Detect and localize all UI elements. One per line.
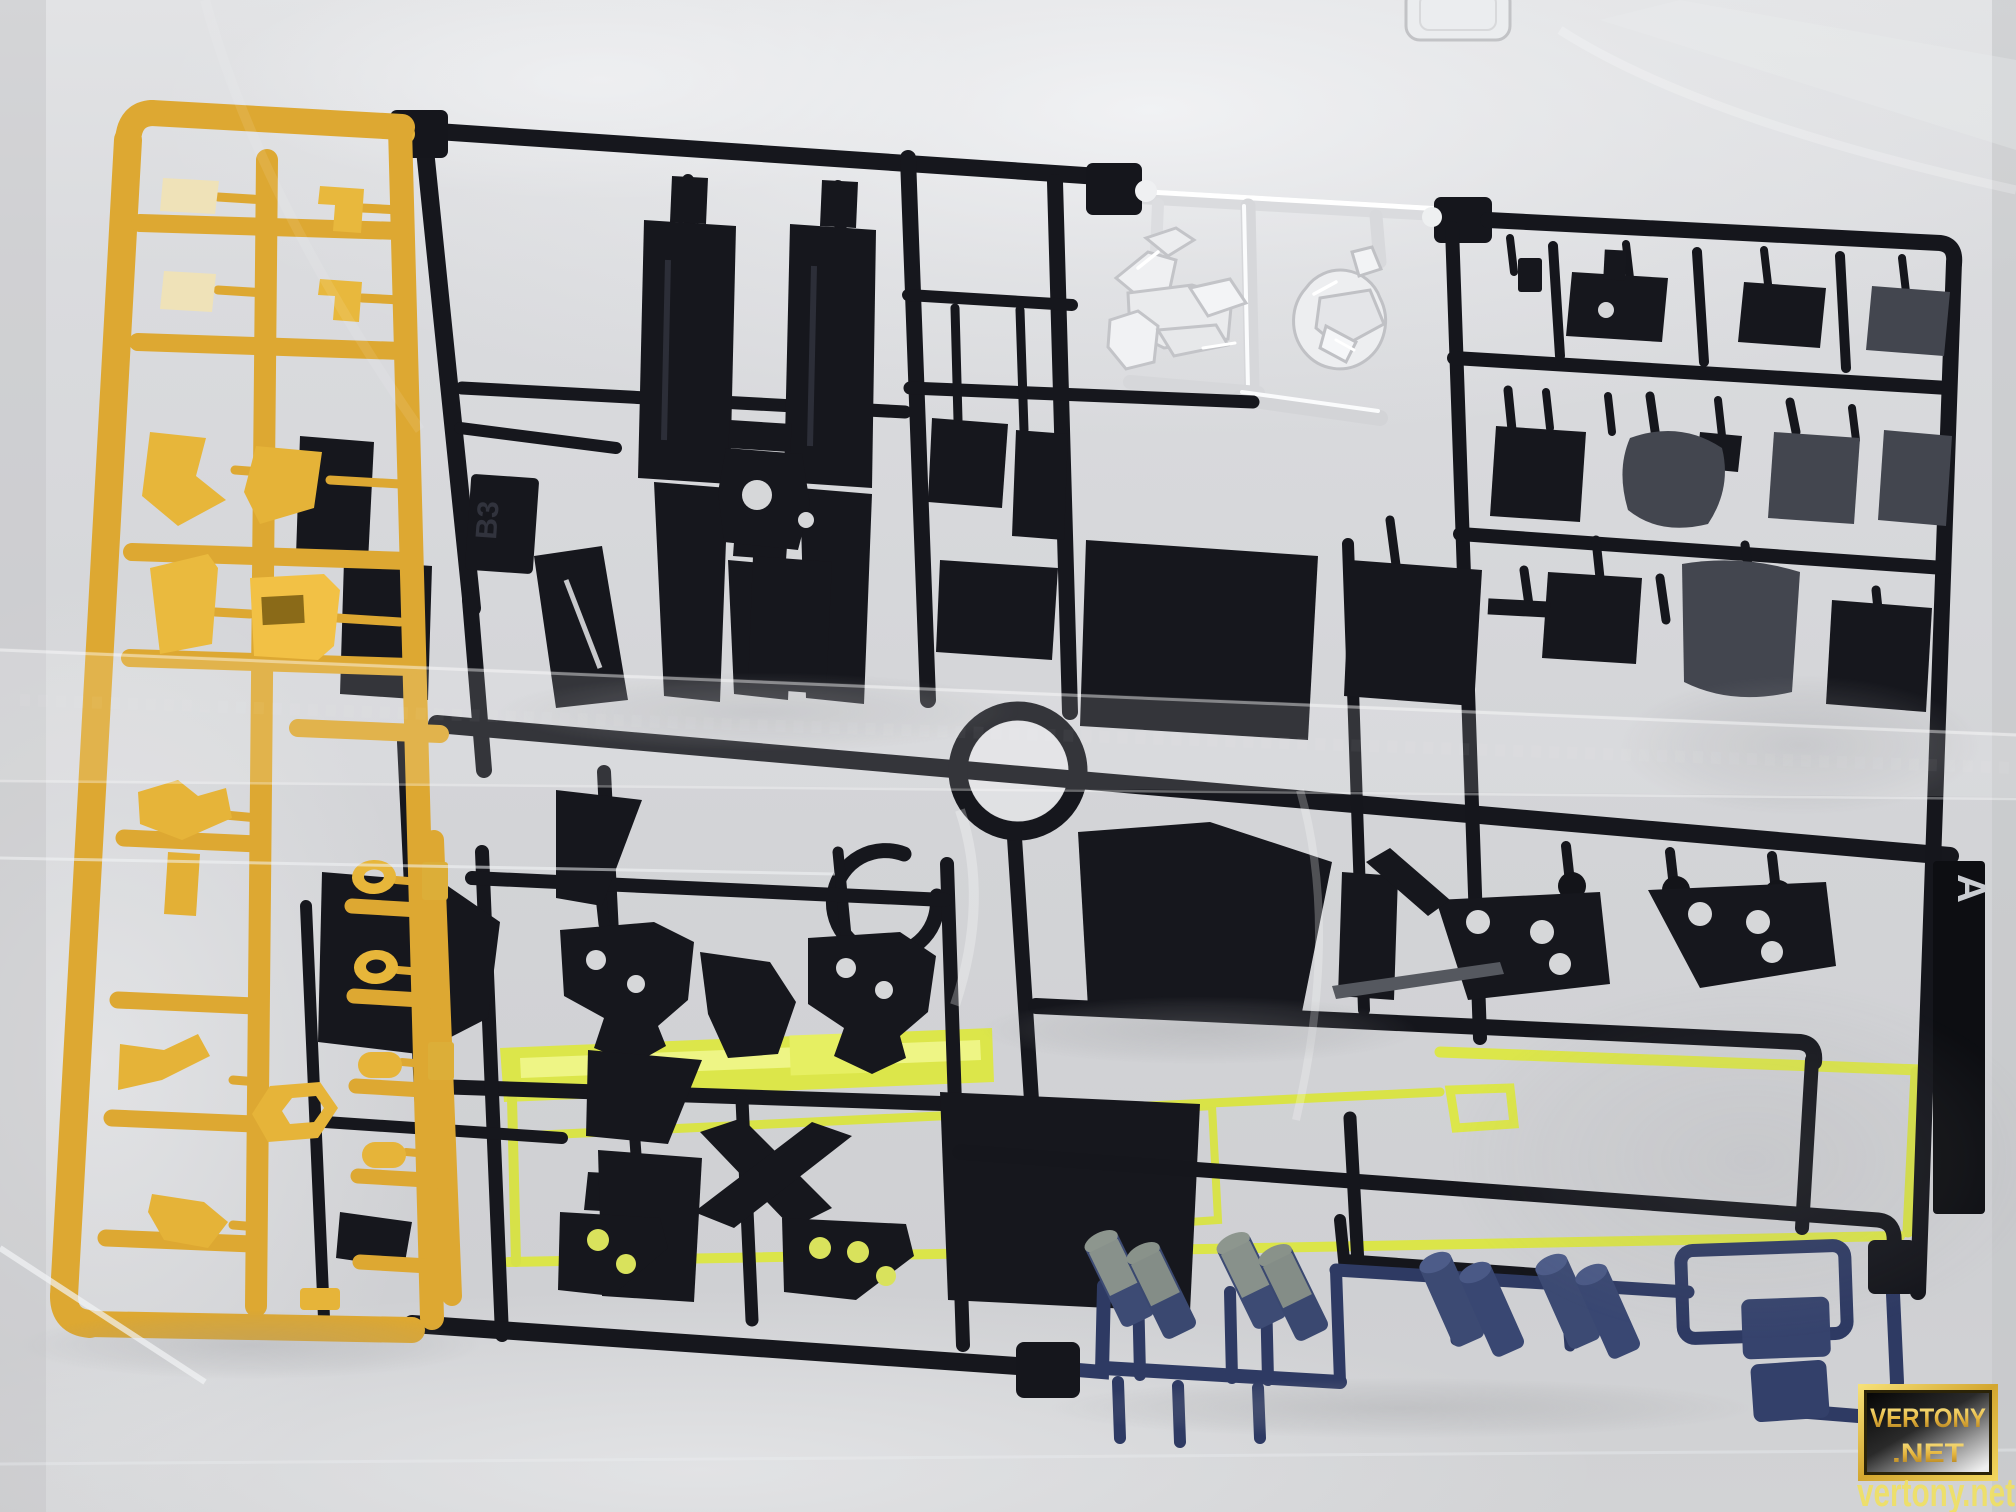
svg-text:B3: B3 [470,500,506,541]
svg-text:vertony.net: vertony.net [1857,1471,2015,1512]
svg-text:.NET: .NET [1892,1438,1965,1468]
svg-text:A: A [1949,874,1993,903]
svg-text:VERTONY: VERTONY [1870,1403,1986,1433]
